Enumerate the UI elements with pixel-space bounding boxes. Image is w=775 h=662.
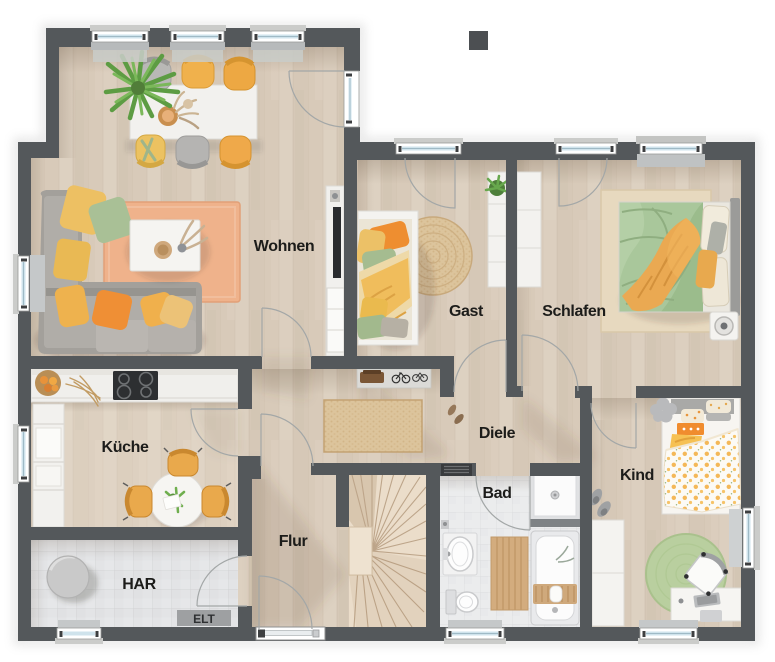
svg-text:HAR: HAR — [122, 576, 156, 593]
svg-text:Wohnen: Wohnen — [254, 238, 314, 255]
svg-text:ELT: ELT — [193, 612, 215, 626]
svg-text:Gast: Gast — [449, 303, 484, 320]
svg-text:Flur: Flur — [279, 533, 308, 550]
svg-text:Küche: Küche — [102, 439, 149, 456]
svg-text:Kind: Kind — [620, 467, 654, 484]
svg-text:Diele: Diele — [479, 425, 516, 442]
svg-text:Bad: Bad — [482, 485, 511, 502]
svg-text:Schlafen: Schlafen — [542, 303, 606, 320]
